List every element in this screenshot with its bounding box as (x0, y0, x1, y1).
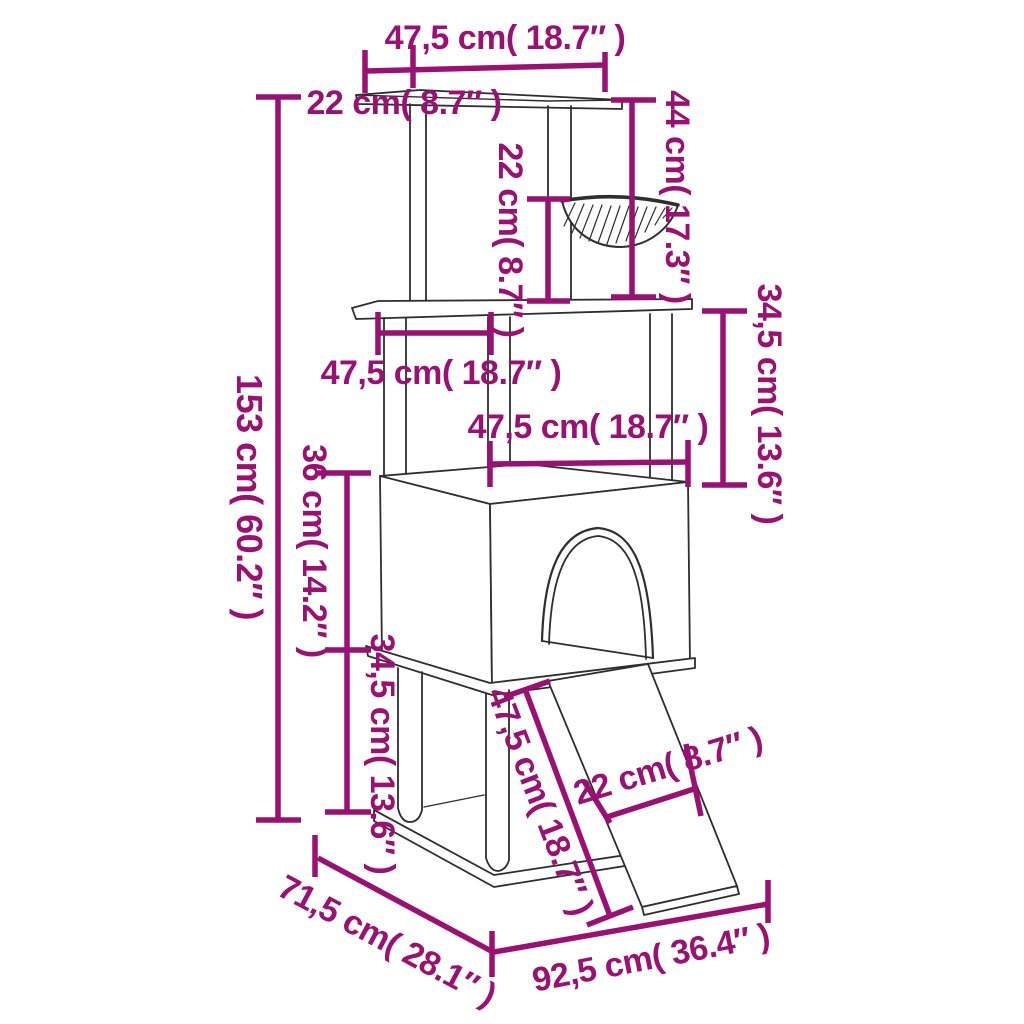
dim-label-top-left-offset: 22 cm( 8.7″ ) (307, 86, 502, 120)
middle-post-right (650, 314, 672, 482)
bottom-post-left (398, 668, 422, 822)
dim-label-lower-left-gap: 34,5 cm( 13.6″ ) (365, 634, 399, 875)
middle-post-left (384, 318, 406, 478)
dim-line-hammock-clearance (527, 199, 570, 301)
house-front-face (490, 482, 690, 688)
dim-label-house-height: 36 cm( 14.2″ ) (297, 444, 331, 657)
dim-line-upper-right-gap (702, 311, 747, 485)
dim-label-hammock-clearance: 22 cm( 8.7″ ) (493, 143, 527, 338)
upper-post-left (410, 104, 426, 303)
dim-label-hammock-drop: 44 cm( 17.3″ ) (660, 90, 694, 303)
dim-label-total-height: 153 cm( 60.2″ ) (231, 374, 267, 620)
dim-label-top-width: 47,5 cm( 18.7″ ) (385, 21, 626, 55)
dim-label-house-width: 47,5 cm( 18.7″ ) (468, 410, 709, 444)
dim-label-platform-depth: 47,5 cm( 18.7″ ) (321, 356, 562, 390)
dimension-diagram: 47,5 cm( 18.7″ ) 22 cm( 8.7″ ) 22 cm( 8.… (0, 0, 1024, 1024)
dim-label-upper-right-gap: 34,5 cm( 13.6″ ) (752, 284, 786, 525)
